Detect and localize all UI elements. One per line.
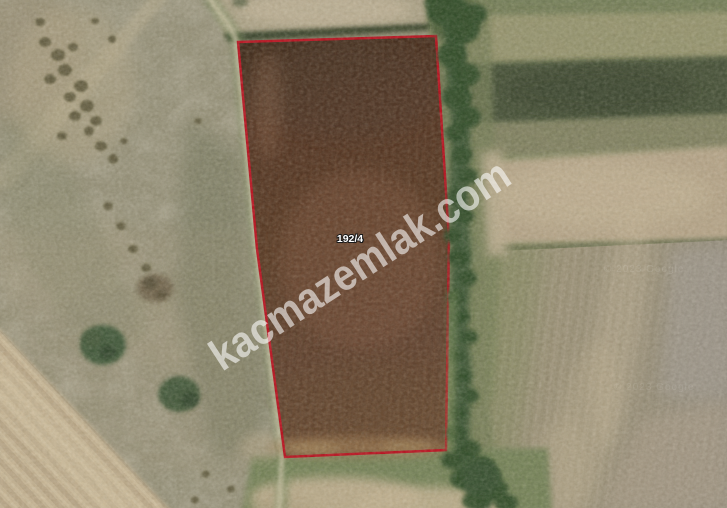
svg-text:© 2023 Google: © 2023 Google	[604, 264, 684, 275]
svg-text:192/4: 192/4	[337, 233, 363, 245]
svg-text:© 2023 Google: © 2023 Google	[614, 382, 694, 393]
